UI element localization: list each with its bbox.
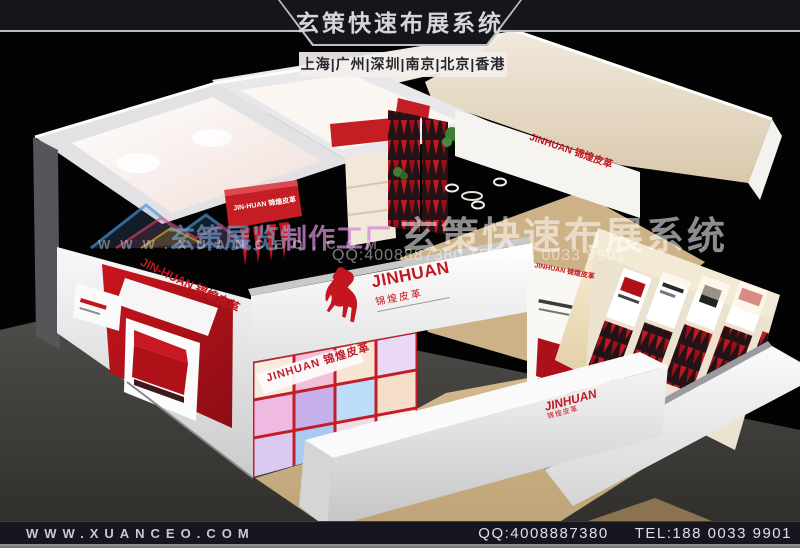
footer-base-line — [0, 544, 800, 548]
footer-bar: WWW.XUANCEO.COM QQ:4008887380TEL:188 003… — [0, 521, 800, 545]
horse-logo-icon — [315, 262, 372, 330]
footer-qq: QQ:4008887380 — [478, 525, 608, 542]
footer-website: WWW.XUANCEO.COM — [26, 522, 255, 545]
footer-tel: TEL:188 0033 9901 — [635, 525, 792, 542]
meeting-chairs — [446, 179, 506, 209]
city-list: 上海|广州|深圳|南京|北京|香港 — [299, 52, 507, 77]
footer-contact: QQ:4008887380TEL:188 0033 9901 — [478, 522, 792, 545]
exhibition-booth-render-page: 玄策展览制作工厂 玄策展览制作工厂 WWW.XUANCEO.COM 玄策快速布展… — [0, 0, 800, 548]
page-title: 玄策快速布展系统 — [0, 4, 800, 38]
